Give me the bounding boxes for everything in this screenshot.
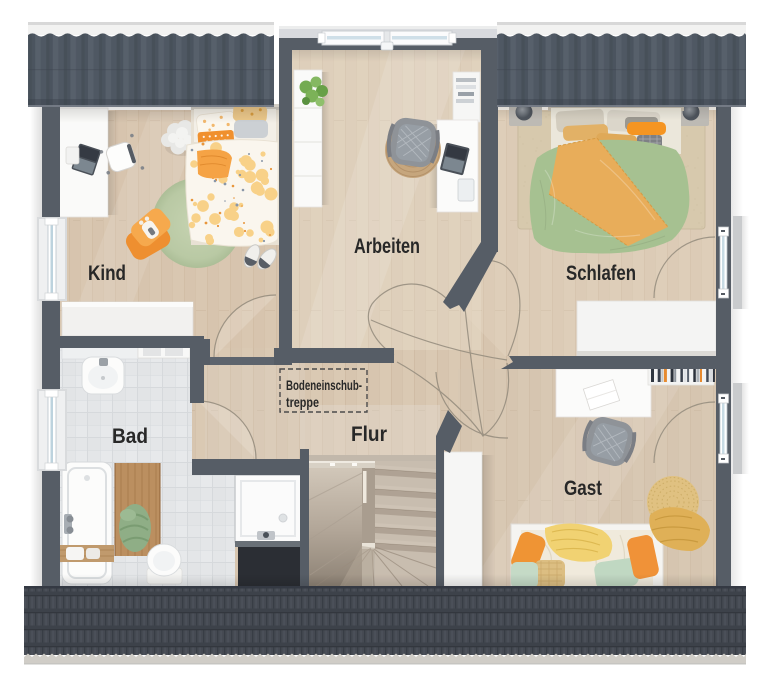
svg-text:Schlafen: Schlafen bbox=[566, 262, 636, 285]
svg-text:Bodeneinschub-: Bodeneinschub- bbox=[286, 378, 362, 393]
svg-text:Kind: Kind bbox=[88, 262, 126, 285]
svg-text:treppe: treppe bbox=[286, 395, 319, 410]
svg-text:Flur: Flur bbox=[351, 423, 387, 446]
svg-text:Gast: Gast bbox=[564, 477, 602, 500]
svg-text:Arbeiten: Arbeiten bbox=[354, 235, 420, 258]
svg-text:Bad: Bad bbox=[112, 425, 148, 448]
